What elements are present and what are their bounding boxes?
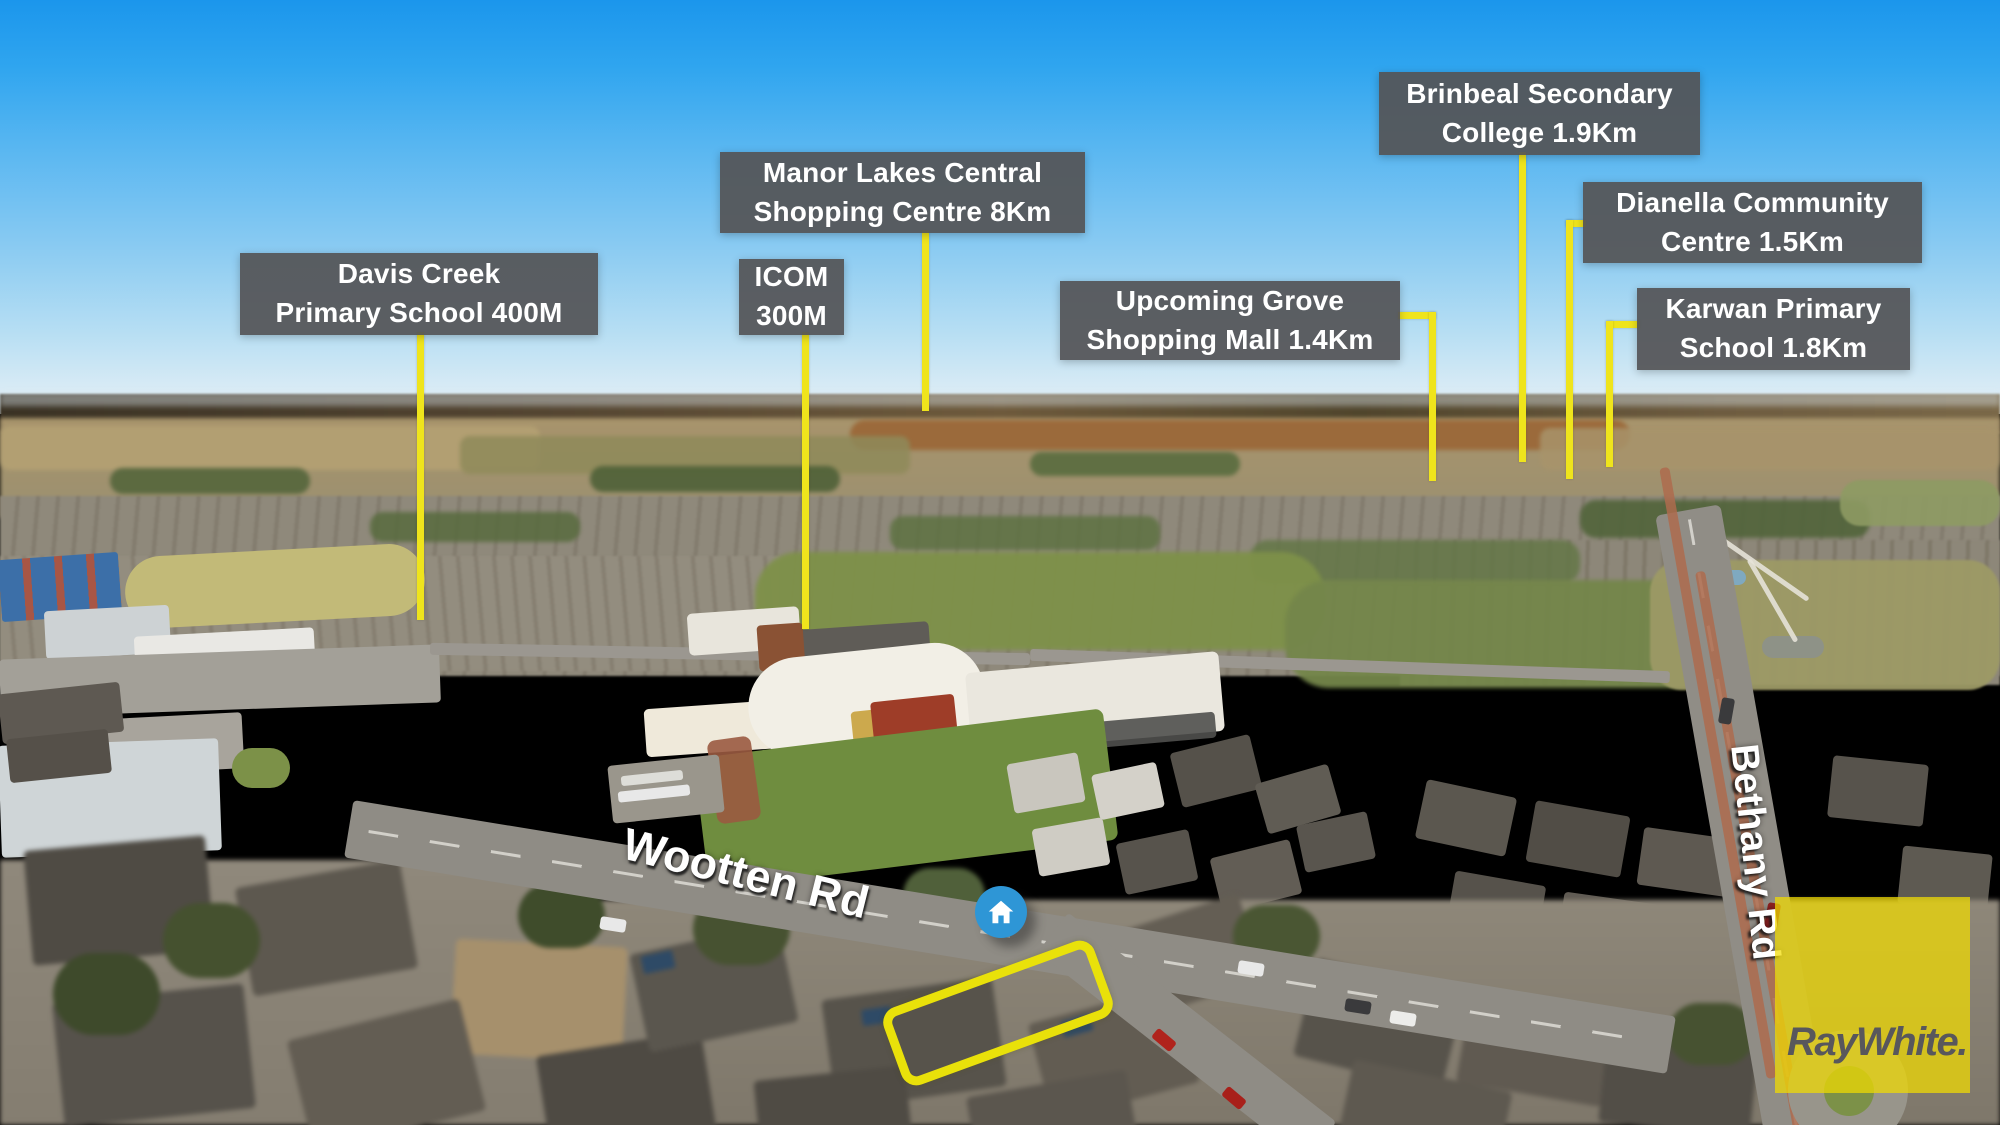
callout-line: Primary School 400M [275,294,562,333]
callout-line: Davis Creek [338,255,501,294]
callout-icom: ICOM 300M [739,259,844,335]
callout-line: Shopping Mall 1.4Km [1087,321,1374,360]
callout-line: Upcoming Grove [1116,282,1344,321]
callout-line: Shopping Centre 8Km [754,193,1052,232]
callout-line: School 1.8Km [1680,329,1868,368]
callout-line: Karwan Primary [1665,290,1881,329]
leader-line-manor-lakes [922,230,929,411]
leader-line-upcoming-grove-v [1429,312,1436,481]
callout-upcoming-grove-shopping-mall: Upcoming Grove Shopping Mall 1.4Km [1060,281,1400,360]
home-icon [985,896,1017,928]
callout-line: Centre 1.5Km [1661,223,1844,262]
callout-line: Manor Lakes Central [763,154,1042,193]
leader-line-davis-creek [417,332,424,620]
callout-line: College 1.9Km [1442,114,1638,153]
subject-property-marker [975,886,1027,938]
callout-line: Dianella Community [1616,184,1889,223]
callout-line: ICOM [755,258,829,297]
callout-manor-lakes-shopping-centre: Manor Lakes Central Shopping Centre 8Km [720,152,1085,233]
callout-dianella-community-centre: Dianella Community Centre 1.5Km [1583,182,1922,263]
leader-line-brinbeal [1519,152,1526,462]
leader-line-karwan-v [1606,321,1613,467]
leader-line-dianella-v [1566,220,1573,479]
aerial-photo-stage: Davis Creek Primary School 400M Manor La… [0,0,2000,1125]
brand-watermark-panel: RayWhite. [1775,897,1970,1093]
callout-line: Brinbeal Secondary [1406,75,1673,114]
scenery-shape [599,916,627,933]
callout-davis-creek-primary-school: Davis Creek Primary School 400M [240,253,598,335]
callout-karwan-primary-school: Karwan Primary School 1.8Km [1637,288,1910,370]
callout-brinbeal-secondary-college: Brinbeal Secondary College 1.9Km [1379,72,1700,155]
brand-logo-text: RayWhite. [1787,1020,1967,1065]
callout-line: 300M [756,297,827,336]
leader-line-icom [802,332,809,629]
